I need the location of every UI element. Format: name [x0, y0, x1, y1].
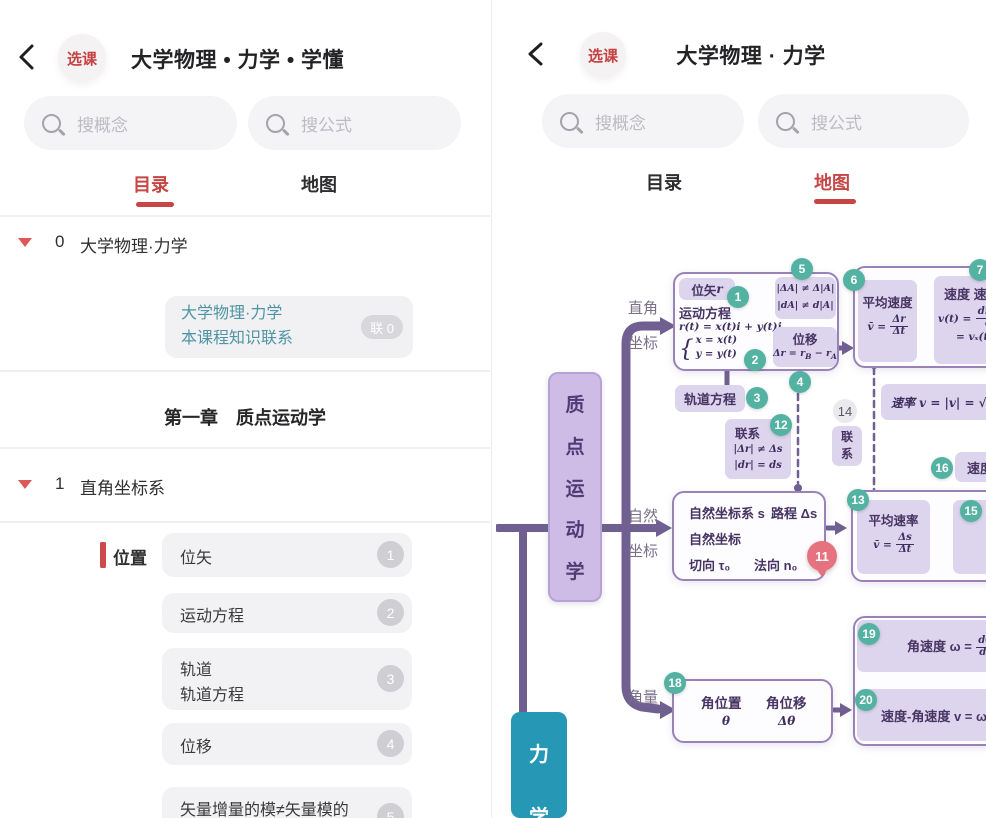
- search-icon: [42, 114, 61, 133]
- tree-node-course-root[interactable]: 0 大学物理·力学: [0, 228, 490, 260]
- node-velocity[interactable]: 速度 速 v(t) = dr(t)dt = vₓ(t: [934, 276, 986, 364]
- concept-item-position-vector[interactable]: 位矢 1: [162, 533, 412, 577]
- course-select-badge[interactable]: 选课: [58, 34, 106, 82]
- concept-number-badge: 5: [377, 803, 404, 818]
- map-number-badge-16: 16: [931, 457, 953, 479]
- concept-item-label: 位矢: [180, 544, 212, 568]
- concept-item-equation-of-motion[interactable]: 运动方程 2: [162, 593, 412, 633]
- map-number-badge-5: 5: [791, 258, 813, 280]
- node-title: 速度 速: [944, 284, 986, 303]
- tab-catalog[interactable]: 目录: [133, 171, 169, 197]
- map-number-badge-7: 7: [969, 259, 986, 281]
- search-concept-input[interactable]: 搜概念: [24, 96, 237, 150]
- case-x: x = x(t): [696, 334, 737, 348]
- displacement-formula: Δr = rB − rA: [773, 348, 837, 361]
- angular-velocity-label: 角速度 ω =: [907, 639, 972, 654]
- concept-number-badge: 2: [377, 599, 404, 626]
- map-number-badge-3: 3: [746, 387, 768, 409]
- node-title: 平均速率: [857, 510, 930, 529]
- formula-lhs: v̄ =: [867, 321, 886, 333]
- map-number-badge-2: 2: [744, 349, 766, 371]
- concept-item-label: 位移: [180, 733, 212, 757]
- branch-label-natural-1: 自然: [628, 505, 658, 526]
- tree-node-rect-coords[interactable]: 1 直角坐标系: [0, 470, 490, 502]
- search-concept-placeholder: 搜概念: [77, 111, 128, 136]
- node-velocity-16[interactable]: 速度: [955, 452, 986, 482]
- node-displacement[interactable]: 位移 Δr = rB − rA: [773, 327, 837, 367]
- divider: [0, 521, 490, 523]
- tree-node-label: 大学物理·力学: [80, 232, 188, 257]
- card-line2: 本课程知识联系: [181, 326, 293, 352]
- branch-label-angular: 角量: [628, 686, 658, 707]
- card-line1: 大学物理·力学: [181, 301, 282, 327]
- natural-line1a: 自然坐标系 s: [689, 503, 765, 522]
- concept-item-label: 运动方程: [180, 602, 244, 626]
- natural-line3a: 切向 τ₀: [689, 555, 730, 574]
- node-natural-coords[interactable]: 自然坐标系 s 路程 Δs 自然坐标 切向 τ₀ 法向 n₀: [672, 491, 826, 581]
- root-node-particle-kinematics[interactable]: 质 点 运 动 学: [548, 372, 602, 602]
- root-char: 质: [565, 390, 584, 417]
- node-angular-position[interactable]: 角位置 θ 角位移 Δθ: [672, 679, 833, 743]
- relation-char2: 系: [832, 447, 862, 462]
- node-average-velocity[interactable]: 平均速度 v̄ = ΔrΔt: [858, 280, 917, 362]
- search-formula-placeholder: 搜公式: [301, 111, 352, 136]
- node-trajectory-equation[interactable]: 轨道方程: [675, 385, 745, 412]
- map-number-badge-4: 4: [789, 371, 811, 393]
- course-knowledge-link-card[interactable]: 大学物理·力学 本课程知识联系 联 0: [165, 296, 413, 358]
- root-char: 点: [565, 432, 584, 459]
- node-title: 速度: [967, 458, 986, 477]
- formula-lhs: v(t) =: [938, 313, 971, 325]
- group-label-position: 位置: [113, 544, 147, 569]
- concept-item-trajectory[interactable]: 轨道 轨道方程 3: [162, 648, 412, 710]
- concept-item-label: 轨道: [180, 656, 212, 680]
- branch-label-rect-1: 直角: [628, 297, 658, 318]
- search-icon: [266, 114, 285, 133]
- node-title: 位移: [773, 329, 837, 348]
- tree-node-label: 直角坐标系: [80, 474, 165, 499]
- formula-lhs: v̄ =: [873, 539, 892, 551]
- node-equation-of-motion-title[interactable]: 运动方程: [679, 303, 731, 322]
- tree-node-number: 0: [55, 232, 64, 252]
- map-number-badge-13: 13: [847, 489, 869, 511]
- case-y: y = y(t): [696, 348, 737, 362]
- node-average-speed[interactable]: 平均速率 v̄ = ΔsΔt: [857, 500, 930, 574]
- map-pin-tail: [815, 567, 829, 584]
- panel-separator: [491, 0, 492, 818]
- branch-label-rect-2: 坐标: [628, 332, 658, 353]
- node-relation-14[interactable]: 联 系: [832, 426, 862, 466]
- formula-line2: = vₓ(t: [956, 331, 986, 343]
- angular-position-label: 角位置: [701, 692, 742, 712]
- next-chapter-char1: 力: [511, 738, 567, 767]
- map-number-badge-19: 19: [858, 623, 880, 645]
- group-label-bar: [100, 542, 106, 568]
- chapter-heading: 第一章 质点运动学: [0, 404, 490, 430]
- node-title: 位矢: [691, 280, 716, 299]
- node-title: 平均速度: [858, 292, 917, 311]
- tab-map[interactable]: 地图: [301, 171, 337, 197]
- collapse-triangle-icon[interactable]: [18, 480, 32, 489]
- concept-item-label2: 轨道方程: [180, 681, 244, 705]
- velocity-angular-relation: 速度-角速度 v = ω: [881, 706, 986, 725]
- search-formula-input[interactable]: 搜公式: [248, 96, 461, 150]
- natural-line1b: 路程 Δs: [771, 503, 817, 522]
- back-icon[interactable]: [16, 43, 38, 71]
- concept-number-badge: 4: [377, 730, 404, 757]
- right-screen-map: 选课 大学物理 · 力学 搜概念 搜公式 目录 地图: [496, 0, 986, 818]
- page-title: 大学物理 • 力学 • 学懂: [131, 44, 344, 74]
- root-char: 学: [565, 557, 584, 584]
- cases-brace: {: [679, 334, 694, 364]
- root-char: 运: [565, 474, 584, 501]
- node-speed-formula[interactable]: 速率 v = |v| = √: [881, 384, 986, 420]
- equation-cases: { x = x(t) y = y(t): [679, 334, 737, 364]
- speed-formula: 速率 v = |v| = √: [891, 394, 986, 411]
- natural-line2: 自然坐标: [689, 529, 741, 548]
- concept-number-badge: 1: [377, 541, 404, 568]
- course-select-label: 选课: [67, 48, 97, 69]
- tree-node-number: 1: [55, 474, 64, 494]
- next-chapter-char2: 学: [511, 801, 567, 818]
- natural-line3b: 法向 n₀: [754, 555, 797, 574]
- concept-number-badge: 3: [377, 665, 404, 692]
- equation-of-motion-formula: r(t) = x(t)i + y(t)j: [679, 321, 781, 333]
- relation-line1: |Δr| ≠ Δs: [725, 442, 791, 458]
- two-screen-screenshot: 选课 大学物理 • 力学 • 学懂 搜概念 搜公式 目录 地图 0 大学物理·力…: [0, 0, 986, 818]
- map-number-badge-12: 12: [770, 414, 792, 436]
- modulus-line2: |dA| ≠ d|A|: [775, 298, 836, 313]
- concept-item-displacement[interactable]: 位移 4: [162, 723, 412, 765]
- angular-position-symbol: θ: [722, 714, 730, 728]
- modulus-line1: |ΔA| ≠ Δ|A|: [775, 279, 836, 298]
- node-title: 轨道方程: [684, 389, 736, 408]
- angular-displacement-label: 角位移: [766, 692, 807, 712]
- concept-item-vector-modulus[interactable]: 矢量增量的模≠矢量模的 5: [162, 787, 412, 818]
- map-number-badge-6: 6: [843, 269, 865, 291]
- map-number-badge-15: 15: [960, 500, 982, 522]
- concept-item-label: 矢量增量的模≠矢量模的: [180, 796, 349, 818]
- collapse-triangle-icon[interactable]: [18, 238, 32, 247]
- map-number-badge-18: 18: [664, 672, 686, 694]
- map-number-badge-20: 20: [855, 689, 877, 711]
- node-modulus-inequality[interactable]: |ΔA| ≠ Δ|A| |dA| ≠ d|A|: [775, 277, 836, 319]
- left-screen-catalog: 选课 大学物理 • 力学 • 学懂 搜概念 搜公式 目录 地图 0 大学物理·力…: [0, 0, 490, 818]
- branch-label-natural-2: 坐标: [628, 540, 658, 561]
- node-var: r: [716, 282, 722, 296]
- next-chapter-node-mechanics[interactable]: 力 学: [511, 712, 567, 818]
- active-tab-underline: [136, 202, 174, 207]
- divider: [0, 215, 490, 217]
- relation-line2: |dr| = ds: [725, 458, 791, 473]
- divider: [0, 370, 490, 372]
- root-char: 动: [565, 515, 584, 542]
- divider: [0, 447, 490, 449]
- angular-displacement-symbol: Δθ: [778, 714, 795, 728]
- relation-char1: 联: [832, 428, 862, 447]
- map-number-badge-14: 14: [833, 399, 857, 423]
- link-count-badge: 联 0: [361, 315, 403, 339]
